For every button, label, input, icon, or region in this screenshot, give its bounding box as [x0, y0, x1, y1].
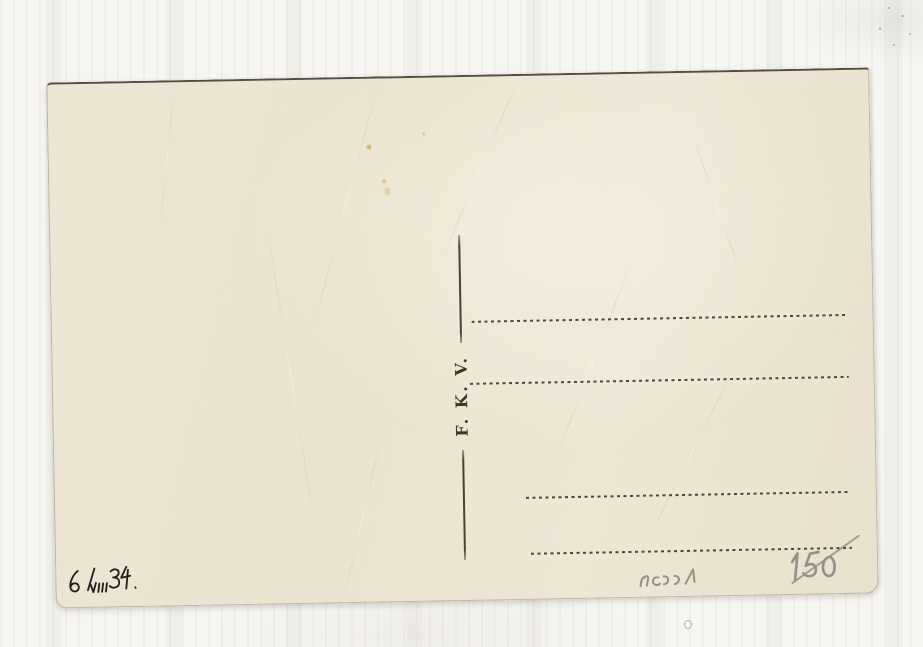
paper-scratch — [343, 439, 382, 603]
dust-speck — [901, 15, 904, 17]
foxing-stain — [422, 133, 425, 136]
divider-line-top — [458, 235, 462, 343]
foxing-stain — [382, 179, 386, 183]
paper-scratch — [267, 230, 315, 526]
publisher-mark: F. K. V. — [451, 351, 473, 441]
address-line-2 — [470, 376, 849, 385]
dust-speck — [879, 27, 881, 30]
handwritten-date — [62, 564, 140, 599]
pencil-price — [778, 530, 867, 588]
scanned-postcard-image: F. K. V. — [0, 0, 923, 647]
paper-scratch — [648, 371, 734, 539]
paper-scratch — [440, 78, 519, 263]
pencil-inventory-mark — [634, 564, 717, 594]
dust-speck — [893, 44, 895, 46]
paper-scratch — [554, 260, 633, 464]
foxing-stain — [384, 187, 390, 195]
dust-speck — [909, 33, 911, 35]
divider-line-bottom — [462, 450, 466, 560]
paper-scratch — [312, 79, 380, 329]
paper-scratch — [692, 134, 743, 278]
dust-speck — [684, 620, 692, 629]
address-line-3 — [526, 491, 849, 499]
paper-scratch — [160, 95, 174, 222]
postcard-back: F. K. V. — [46, 68, 879, 609]
foxing-stain — [366, 145, 371, 150]
address-line-1 — [472, 314, 847, 323]
dust-speck — [888, 7, 890, 9]
